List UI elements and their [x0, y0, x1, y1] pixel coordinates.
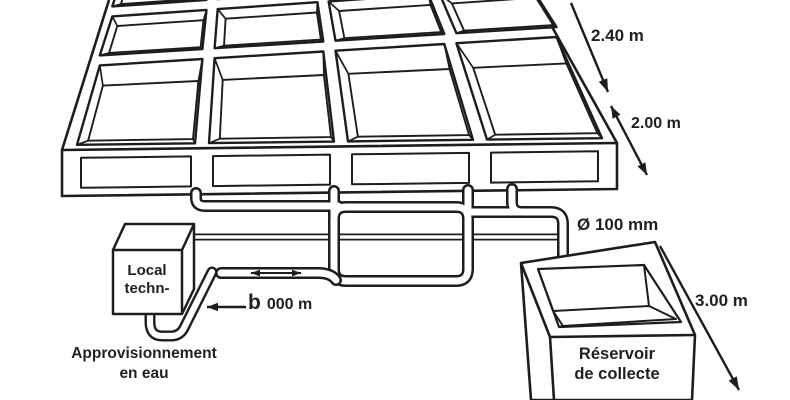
pipe-length-prefix: b [248, 291, 261, 315]
basin-length-label: 2.40 m [591, 26, 644, 46]
reservoir-dimension-label: 3.00 m [695, 291, 748, 311]
basin-farm-diagram [0, 0, 790, 400]
water-supply-label-line2: en eau [52, 364, 236, 384]
basin-width-label: 2.00 m [631, 115, 681, 133]
water-supply-label: Approvisionnement en eau [52, 344, 236, 384]
platform-front-band [62, 143, 617, 196]
technical-room-label-line1: Local [107, 262, 187, 280]
basin-cell [209, 52, 334, 144]
basin-cell [329, 0, 445, 41]
pipe-length-label: b 000 m [248, 291, 312, 315]
pipe-length-value: 000 m [267, 296, 312, 314]
basin-grid [62, 0, 617, 196]
diagram-canvas: 2.40 m 2.00 m Ø 100 mm 3.00 m Local tech… [0, 0, 790, 400]
reservoir-label-line1: Réservoir [552, 344, 682, 364]
basin-cell [440, 0, 557, 33]
collection-reservoir-label: Réservoir de collecte [552, 344, 682, 384]
basin-cell [215, 2, 324, 48]
flow-measurement-pipe [221, 273, 336, 280]
basin-cell [100, 10, 207, 56]
water-supply-label-line1: Approvisionnement [52, 344, 236, 364]
reservoir-label-line2: de collecte [552, 364, 682, 384]
pipe-diameter-label: Ø 100 mm [577, 215, 658, 235]
technical-room-label: Local techn- [107, 262, 187, 298]
technical-room-label-line2: techn- [107, 280, 187, 298]
pipe-length-pointer-arrow [207, 303, 246, 311]
